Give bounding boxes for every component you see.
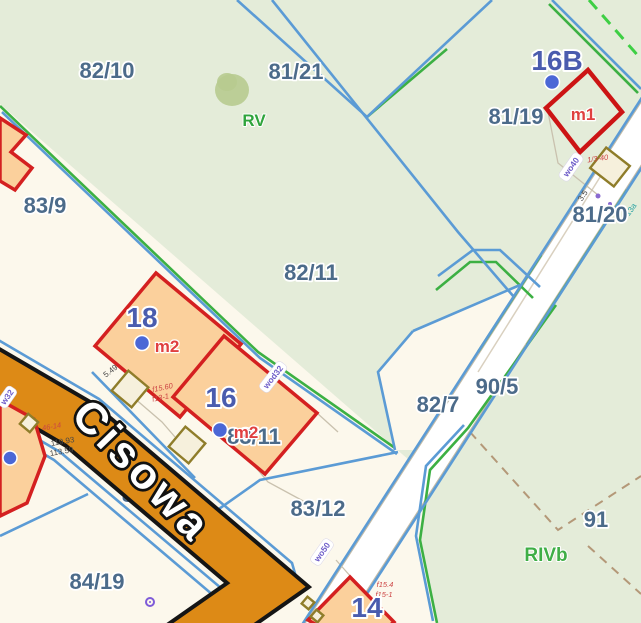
house-number-18[interactable]: 18 bbox=[126, 302, 157, 333]
house-number-14[interactable]: 14 bbox=[351, 592, 383, 623]
parcel-label-83-9[interactable]: 83/9 bbox=[24, 193, 67, 218]
address-point-18[interactable] bbox=[135, 336, 150, 351]
address-point-left[interactable] bbox=[3, 451, 17, 465]
parcel-label-90-5[interactable]: 90/5 bbox=[476, 374, 519, 399]
map-canvas[interactable]: 84 f15.60 f13-1 119.9 bbox=[0, 0, 641, 623]
parcel-label-83-12[interactable]: 83/12 bbox=[290, 496, 345, 521]
utility-point-icon bbox=[596, 194, 601, 199]
building-label-m2-16: m2 bbox=[234, 423, 259, 442]
address-point-16b[interactable] bbox=[545, 75, 560, 90]
parcel-label-84-19[interactable]: 84/19 bbox=[69, 569, 124, 594]
parcel-label-82-11[interactable]: 82/11 bbox=[284, 260, 338, 285]
manhole-icon bbox=[149, 601, 151, 603]
parcel-label-82-7[interactable]: 82/7 bbox=[417, 392, 460, 417]
land-class-label-rv: RV bbox=[242, 111, 266, 130]
address-point-16[interactable] bbox=[213, 423, 228, 438]
parcel-label-81-19[interactable]: 81/19 bbox=[488, 104, 543, 129]
building-label-m1: m1 bbox=[571, 105, 596, 124]
house-number-16b[interactable]: 16B bbox=[531, 45, 582, 76]
building-label-m2-18: m2 bbox=[155, 337, 180, 356]
house-number-16[interactable]: 16 bbox=[205, 382, 236, 413]
parcel-label-81-20[interactable]: 81/20 bbox=[572, 202, 627, 227]
land-class-label-rivb: RIVb bbox=[524, 545, 567, 566]
parcel-label-82-10[interactable]: 82/10 bbox=[79, 58, 134, 83]
parcel-label-91[interactable]: 91 bbox=[584, 507, 608, 532]
annotation-text: f15.4 bbox=[377, 580, 394, 589]
parcel-label-81-21[interactable]: 81/21 bbox=[268, 59, 323, 84]
